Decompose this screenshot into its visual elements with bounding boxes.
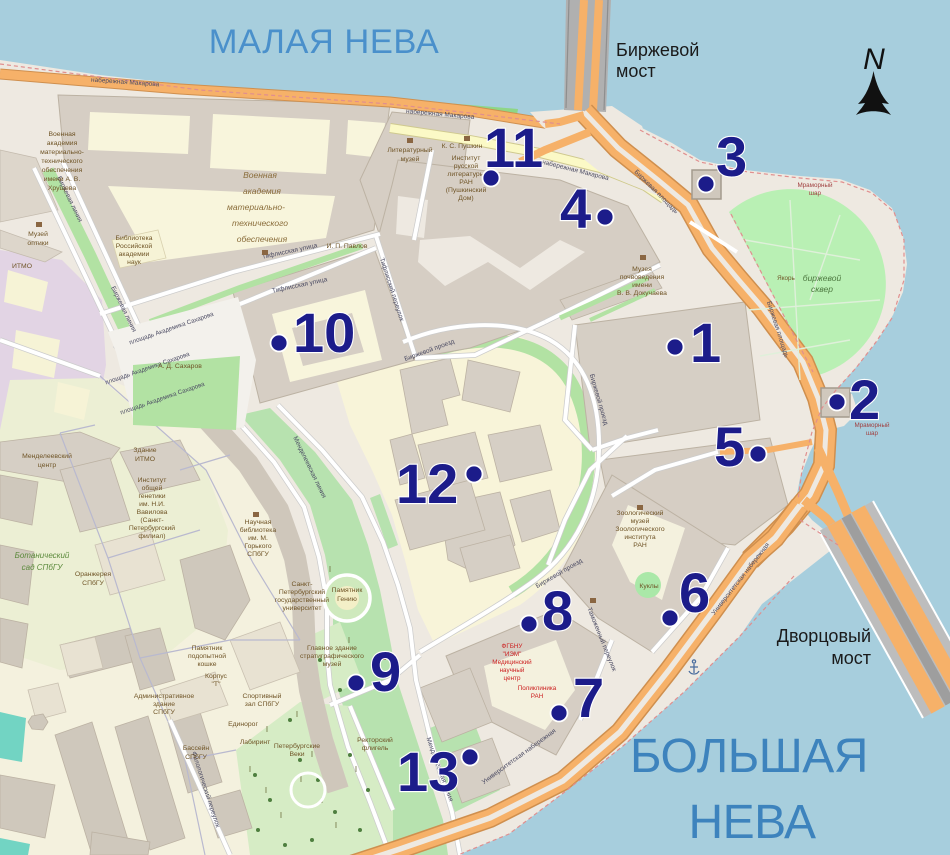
svg-text:СПбГУ: СПбГУ xyxy=(247,550,269,558)
svg-text:"Т": "Т" xyxy=(212,681,222,688)
svg-text:I: I xyxy=(265,786,267,795)
svg-text:Корпус: Корпус xyxy=(205,673,228,680)
svg-text:СПбГУ: СПбГУ xyxy=(153,708,175,716)
svg-text:научный: научный xyxy=(500,666,525,674)
svg-text:подопытной: подопытной xyxy=(188,652,226,660)
svg-text:ИТМО: ИТМО xyxy=(12,263,32,270)
svg-text:Ректорский: Ректорский xyxy=(357,736,393,744)
svg-text:Военная: Военная xyxy=(48,131,75,138)
svg-text:Здание: Здание xyxy=(133,447,156,454)
svg-text:ИТМО: ИТМО xyxy=(135,456,155,463)
svg-text:РАН: РАН xyxy=(633,542,647,549)
svg-text:Петербургский: Петербургский xyxy=(279,588,325,596)
svg-text:центр: центр xyxy=(38,462,56,469)
svg-text:Якорь: Якорь xyxy=(777,275,795,282)
svg-text:академия: академия xyxy=(243,186,281,196)
svg-text:Гению: Гению xyxy=(337,596,357,603)
svg-text:академии: академии xyxy=(119,251,150,258)
svg-text:библиотека: библиотека xyxy=(240,526,277,534)
svg-text:МАЛАЯ НЕВА: МАЛАЯ НЕВА xyxy=(209,23,439,61)
svg-text:Петербургский: Петербургский xyxy=(129,524,175,532)
svg-text:академия: академия xyxy=(47,140,78,147)
svg-text:материально-: материально- xyxy=(227,202,285,212)
svg-text:СПбГУ: СПбГУ xyxy=(185,753,207,761)
svg-text:музей: музей xyxy=(631,517,650,525)
svg-text:Памятник: Памятник xyxy=(332,587,363,594)
svg-text:сквер: сквер xyxy=(811,284,833,294)
svg-text:мост: мост xyxy=(616,61,656,81)
svg-text:биржевой: биржевой xyxy=(803,273,842,283)
svg-text:12: 12 xyxy=(396,452,458,515)
svg-text:Единорог: Единорог xyxy=(228,721,258,728)
svg-text:технического: технического xyxy=(41,158,82,165)
svg-text:4: 4 xyxy=(560,177,591,240)
svg-text:Дворцовый: Дворцовый xyxy=(777,626,871,646)
svg-text:РАН: РАН xyxy=(459,179,473,186)
svg-text:К. С. Пушкин: К. С. Пушкин xyxy=(442,143,483,150)
svg-text:филиал): филиал) xyxy=(138,533,165,540)
svg-text:Вавилова: Вавилова xyxy=(137,509,168,516)
svg-text:I: I xyxy=(249,765,251,774)
svg-text:музей: музей xyxy=(401,155,420,163)
svg-text:Российской: Российской xyxy=(116,242,153,250)
svg-text:И. П. Павлов: И. П. Павлов xyxy=(327,243,368,250)
svg-text:I: I xyxy=(266,725,268,734)
svg-text:материально-: материально- xyxy=(40,149,84,156)
svg-text:6: 6 xyxy=(679,561,710,624)
svg-text:Лабиринт: Лабиринт xyxy=(240,738,270,746)
svg-text:Памятник: Памятник xyxy=(192,645,223,652)
svg-text:I: I xyxy=(311,750,313,759)
svg-text:имени: имени xyxy=(632,282,652,289)
svg-text:Куклы: Куклы xyxy=(639,583,658,590)
svg-text:центр: центр xyxy=(504,675,521,682)
svg-text:БОЛЬШАЯ: БОЛЬШАЯ xyxy=(630,730,868,783)
svg-text:стратиграфического: стратиграфического xyxy=(300,653,364,660)
svg-text:Дом): Дом) xyxy=(458,195,473,202)
svg-text:университет: университет xyxy=(283,605,322,612)
svg-text:Зоологический: Зоологический xyxy=(617,509,664,517)
svg-text:общей: общей xyxy=(142,484,163,492)
svg-text:сад СПбГУ: сад СПбГУ xyxy=(22,563,64,572)
svg-text:Горького: Горького xyxy=(244,543,271,550)
svg-text:1: 1 xyxy=(690,311,721,374)
svg-text:Ботанический: Ботанический xyxy=(15,551,70,560)
svg-text:8: 8 xyxy=(542,579,573,642)
svg-text:Оранжерея: Оранжерея xyxy=(75,571,111,578)
svg-text:I: I xyxy=(296,710,298,719)
svg-text:Институт: Институт xyxy=(138,477,167,484)
svg-text:Мраморный: Мраморный xyxy=(797,181,833,189)
svg-text:I: I xyxy=(355,765,357,774)
svg-text:Административное: Административное xyxy=(134,693,194,700)
svg-text:I: I xyxy=(280,811,282,820)
svg-text:Бассейн: Бассейн xyxy=(183,744,210,752)
svg-text:зал СПбГУ: зал СПбГУ xyxy=(245,700,280,708)
svg-text:Музей: Музей xyxy=(28,230,48,238)
svg-text:здание: здание xyxy=(153,701,175,708)
svg-text:Военная: Военная xyxy=(243,170,277,180)
svg-text:11: 11 xyxy=(484,116,543,179)
svg-text:им. М.: им. М. xyxy=(248,535,268,542)
svg-text:РАН: РАН xyxy=(531,693,544,700)
svg-text:русской: русской xyxy=(454,162,479,170)
svg-text:А. Д. Сахаров: А. Д. Сахаров xyxy=(158,363,202,370)
svg-text:I: I xyxy=(329,565,331,574)
svg-text:шар: шар xyxy=(809,190,822,197)
svg-text:В. В. Докучаева: В. В. Докучаева xyxy=(617,290,667,297)
svg-text:Медицинский: Медицинский xyxy=(492,658,532,666)
svg-text:Главное здание: Главное здание xyxy=(307,645,357,652)
svg-text:Институт: Институт xyxy=(452,155,481,162)
svg-text:I: I xyxy=(348,636,350,645)
svg-text:имени А. В.: имени А. В. xyxy=(44,176,81,183)
svg-text:музей: музей xyxy=(323,660,342,668)
svg-text:почвоведения: почвоведения xyxy=(620,274,665,281)
svg-text:обеспечения: обеспечения xyxy=(42,166,83,174)
svg-text:Библиотека: Библиотека xyxy=(116,234,153,242)
svg-text:оптики: оптики xyxy=(27,240,48,247)
svg-text:Зоологического: Зоологического xyxy=(615,526,664,533)
svg-text:N: N xyxy=(863,43,885,76)
svg-text:10: 10 xyxy=(293,301,355,364)
svg-text:13: 13 xyxy=(397,740,459,803)
svg-text:технического: технического xyxy=(232,218,288,228)
svg-text:Биржевой: Биржевой xyxy=(616,40,699,60)
svg-text:СПбГУ: СПбГУ xyxy=(82,579,104,587)
svg-text:флигель: флигель xyxy=(362,745,389,752)
svg-text:Веки: Веки xyxy=(289,751,304,758)
svg-text:ФГБНУ: ФГБНУ xyxy=(502,643,524,650)
svg-text:кошке: кошке xyxy=(197,661,216,668)
svg-text:шар: шар xyxy=(866,430,879,437)
svg-text:9: 9 xyxy=(370,640,401,703)
svg-text:им. Н.И.: им. Н.И. xyxy=(139,501,165,508)
svg-text:2: 2 xyxy=(849,368,880,431)
svg-text:Хрущева: Хрущева xyxy=(48,185,76,192)
svg-text:Литературный: Литературный xyxy=(387,146,432,154)
svg-text:государственный: государственный xyxy=(275,596,329,604)
svg-text:(Пушкинский: (Пушкинский xyxy=(446,186,487,194)
svg-text:литературы: литературы xyxy=(447,171,484,178)
svg-text:5: 5 xyxy=(714,415,745,478)
svg-text:института: института xyxy=(624,534,655,541)
svg-text:генетики: генетики xyxy=(138,493,165,500)
svg-text:Поликлиника: Поликлиника xyxy=(518,685,557,692)
svg-text:Научная: Научная xyxy=(245,519,272,526)
svg-text:(Санкт-: (Санкт- xyxy=(140,517,163,524)
svg-text:3: 3 xyxy=(716,125,747,188)
svg-text:"ИЭМ": "ИЭМ" xyxy=(503,651,522,658)
svg-text:наук: наук xyxy=(127,259,141,266)
svg-text:обеспечения: обеспечения xyxy=(237,234,288,244)
svg-text:7: 7 xyxy=(573,666,604,729)
svg-text:Санкт-: Санкт- xyxy=(292,581,313,588)
svg-text:НЕВА: НЕВА xyxy=(688,796,816,849)
svg-text:Спортивный: Спортивный xyxy=(243,692,282,700)
svg-text:Музея: Музея xyxy=(632,266,652,273)
svg-text:Менделеевский: Менделеевский xyxy=(22,452,72,460)
svg-text:мост: мост xyxy=(831,648,871,668)
svg-text:I: I xyxy=(335,821,337,830)
svg-text:Петербургские: Петербургские xyxy=(274,742,320,750)
